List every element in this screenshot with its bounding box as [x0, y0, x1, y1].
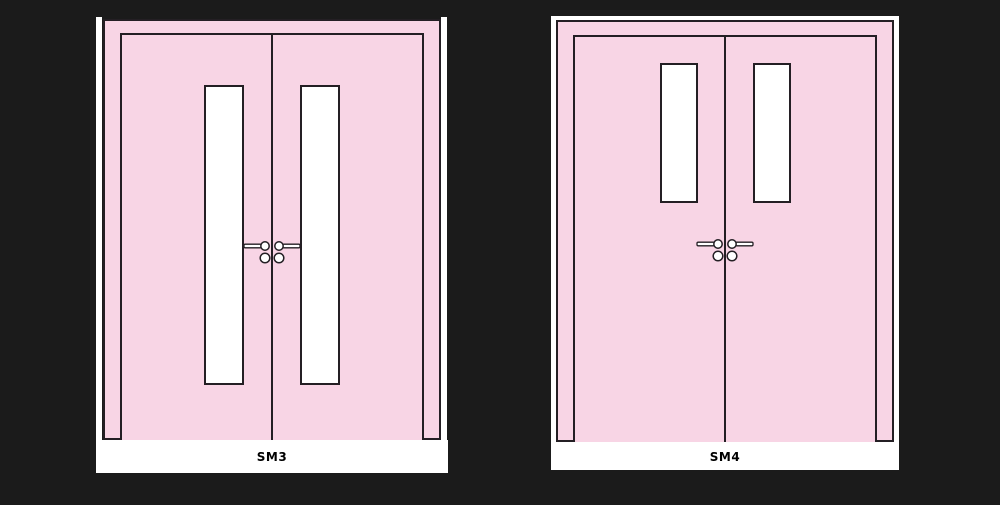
lock-cylinder-right-icon: [274, 253, 284, 263]
door-label: SM4: [710, 450, 740, 464]
lever-handle-left-icon: [697, 240, 722, 248]
door-figure-sm3: SM3: [96, 14, 448, 473]
door-window-left: [660, 63, 698, 203]
door-label: SM3: [257, 450, 287, 464]
lever-handle-right-icon: [275, 242, 300, 250]
lock-cylinder-left-icon: [260, 253, 270, 263]
lock-cylinder-right-icon: [727, 251, 737, 261]
door-figure-sm4: SM4: [551, 15, 899, 470]
wall-strip-left: [96, 17, 102, 440]
lock-cylinder-left-icon: [713, 251, 723, 261]
door-handles: [238, 230, 306, 270]
label-plate: SM3: [96, 440, 448, 473]
wall-strip-right: [441, 17, 447, 440]
lever-handle-left-icon: [244, 242, 269, 250]
label-plate: SM4: [551, 443, 899, 470]
lever-handle-right-icon: [728, 240, 753, 248]
door-window-right: [300, 85, 340, 385]
drawing-canvas: SM3 SM4: [0, 0, 1000, 505]
door-handles: [691, 228, 759, 268]
door-window-right: [753, 63, 791, 203]
